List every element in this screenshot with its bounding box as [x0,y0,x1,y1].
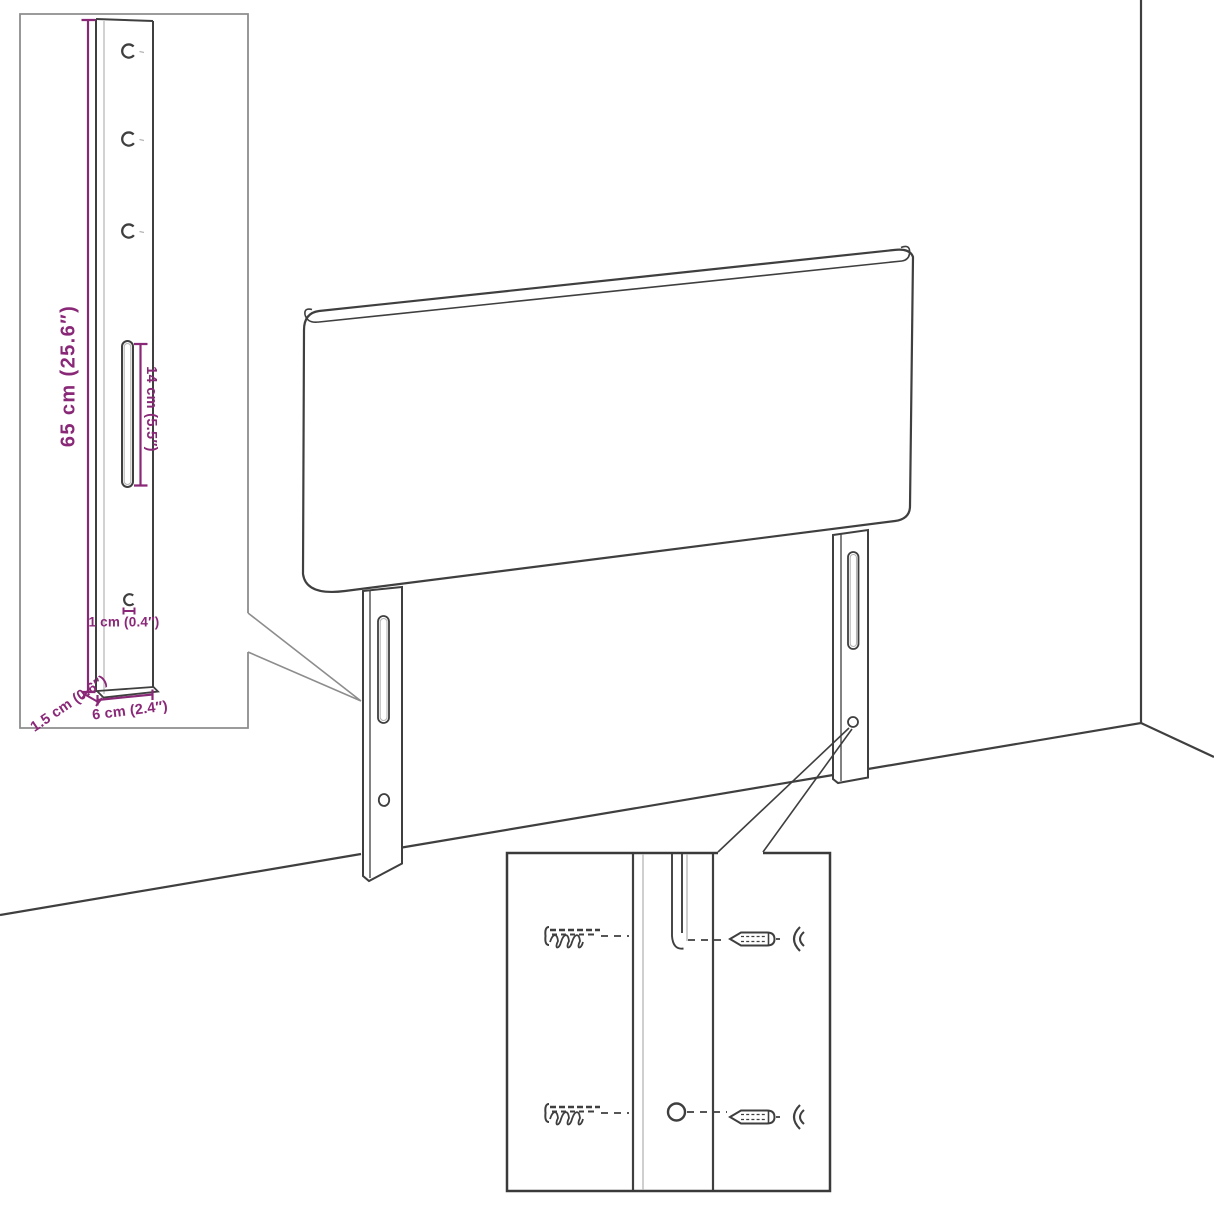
headboard-panel [303,246,913,591]
screw-inset-border [507,853,830,1191]
dimension-label-height: 65 cm (25.6″) [58,305,81,447]
right-leg [833,530,868,783]
dimension-label-hole-offset: 1 cm (0.4″) [89,615,160,630]
bracket-inset-callout-lines [248,613,361,701]
screw-bottom [730,1111,775,1124]
dimension-label-slot: 14 cm (5.5″) [143,366,159,452]
screw-top [730,933,775,946]
screw-detail-inset [507,853,830,1191]
diagram-page: 65 cm (25.6″) 14 cm (5.5″) 1 cm (0.4″) 1… [0,0,1214,1214]
diagram-canvas [0,0,1214,1214]
left-leg [363,587,402,881]
